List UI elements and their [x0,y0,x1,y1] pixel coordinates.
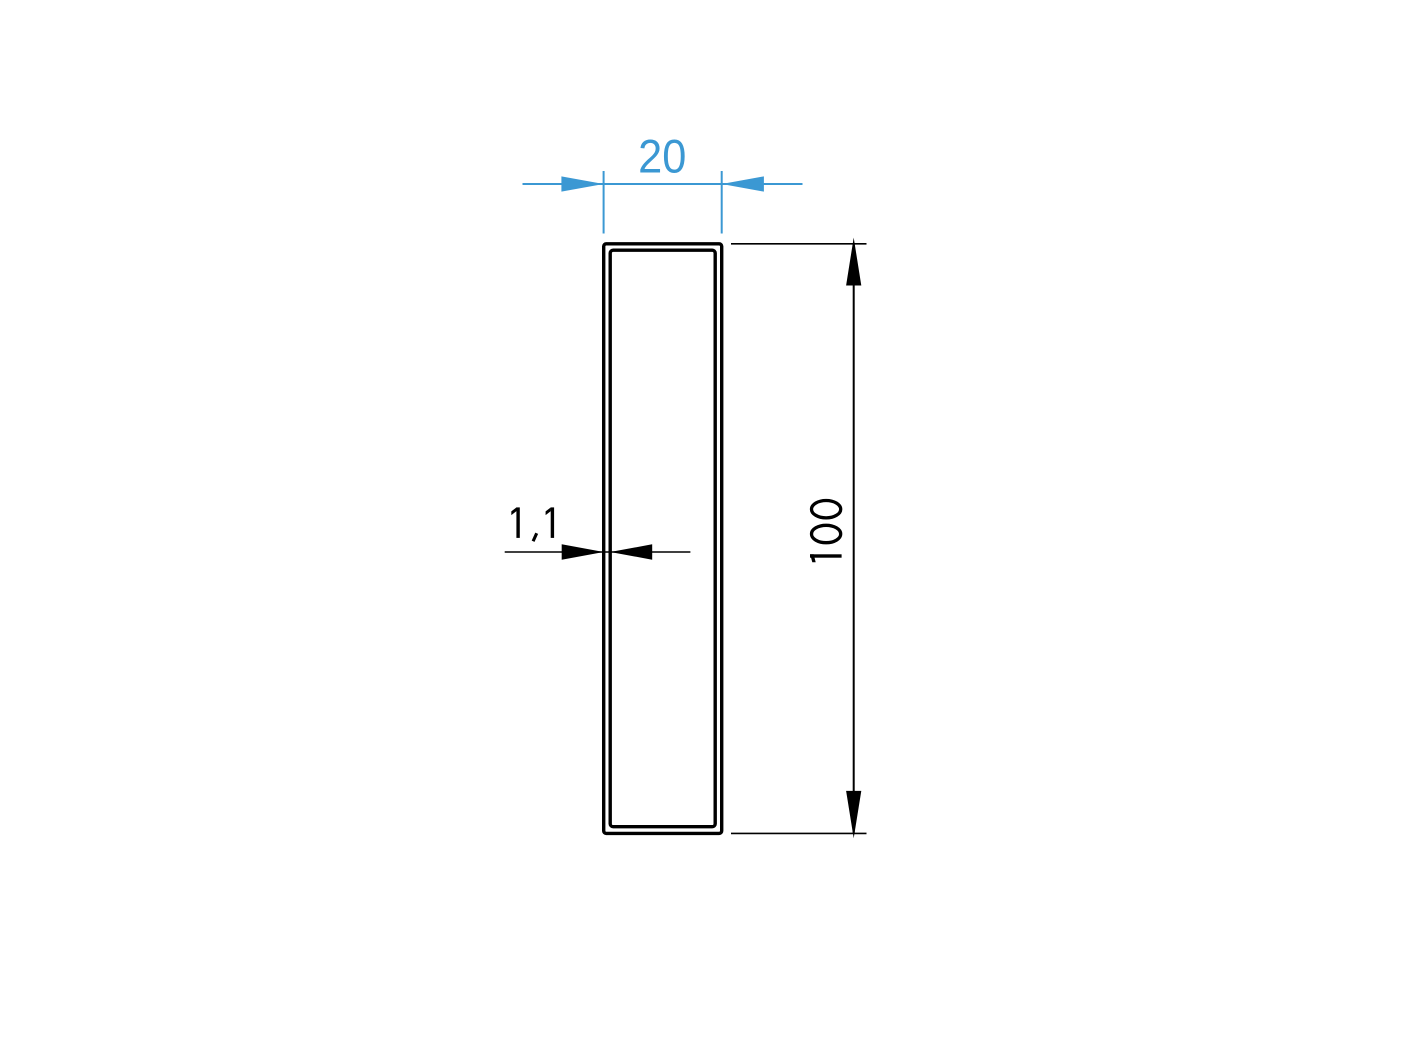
svg-text:20: 20 [638,130,686,183]
